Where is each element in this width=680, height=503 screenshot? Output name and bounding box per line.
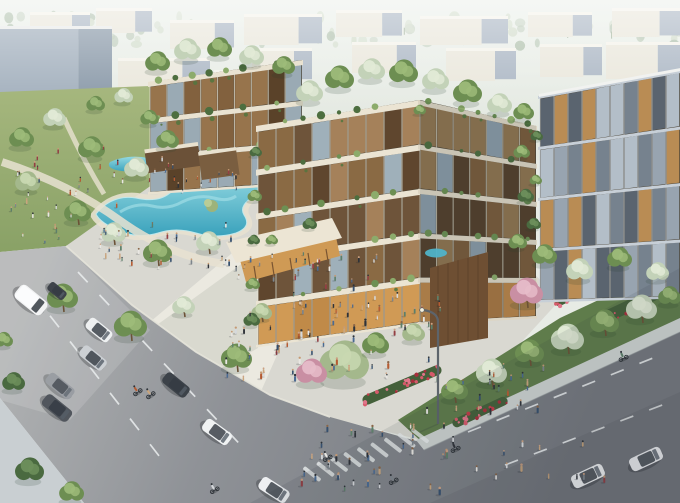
tree-highlight [543,250,553,260]
tree-highlight [525,285,538,298]
person-head [489,370,491,372]
window-bay [625,191,638,243]
balcony-planting [336,286,341,291]
tree-highlight [70,487,80,497]
person [446,386,447,389]
tree-highlight [255,149,260,154]
person-head [362,305,363,306]
person [321,443,323,447]
person [277,344,279,350]
person-head [352,303,353,304]
window-bay [597,194,610,245]
person [392,297,394,301]
person [371,427,373,433]
person-head [208,263,210,265]
person [232,343,233,347]
tree-highlight [656,267,665,276]
tree-highlight [370,64,380,74]
tree-highlight [338,72,349,83]
person [178,184,180,188]
person-head [367,274,369,276]
person [367,276,368,280]
person [431,325,433,330]
window-bay [331,294,348,334]
person [103,229,104,233]
person [319,260,321,264]
balcony-planting [390,233,396,239]
person-head [151,253,152,254]
balcony-planting [264,165,270,171]
person-head [38,178,40,180]
person-head [230,235,232,237]
person [301,302,303,306]
balcony-planting [371,191,379,199]
person-head [225,357,227,359]
person-head [34,161,36,163]
person-head [364,319,366,321]
person [378,307,380,312]
person-head [177,182,179,184]
person [120,246,122,251]
person-head [308,329,310,331]
person [371,365,372,368]
balcony-planting [189,72,196,79]
main-building-sunlit-face [256,100,421,348]
person [300,331,302,337]
person-head [15,203,16,204]
window-bay [653,76,666,131]
person-head [243,375,245,377]
person-head [378,305,380,307]
tree-highlight [498,99,508,109]
person-head [119,253,121,255]
person-head [118,230,120,232]
person-head [113,172,115,174]
tree-highlight [207,237,217,247]
person [121,258,122,261]
person-head [191,258,193,260]
window-bay [277,126,294,166]
person-head [160,259,162,261]
person-head [348,365,350,367]
person-head [394,329,396,331]
person [114,173,115,177]
window-bay [313,120,330,160]
person-head [103,145,104,146]
person [109,249,110,252]
window-bay [611,192,624,244]
tree-highlight [156,57,166,67]
person [152,224,153,228]
person [26,200,28,204]
balcony-planting [171,111,179,119]
person [197,177,198,180]
person-head [228,169,230,171]
person [57,149,59,153]
person-head [305,302,307,304]
window-bay [569,144,582,195]
person [22,234,23,237]
window-bay [653,132,666,186]
hanging-plant [341,164,344,167]
person-head [75,191,76,192]
person [312,264,314,269]
person-head [225,222,227,224]
person [351,280,352,283]
person-head [325,282,327,284]
person-head [210,178,211,179]
person-head [400,321,402,323]
tree-highlight [95,100,102,107]
balcony-planting [283,119,287,123]
person [75,192,76,196]
window-bay [583,195,596,246]
window-bay [639,189,652,242]
person [377,316,378,319]
window-bay [218,114,233,149]
person-head [371,364,372,365]
person [428,358,430,362]
window-bay [667,130,680,185]
person [191,260,193,264]
person-head [273,275,275,277]
person [56,229,58,233]
person-head [69,190,71,192]
person [333,304,334,308]
window-bay [403,284,420,325]
person-head [311,453,313,455]
person [243,377,244,381]
window-bay [625,136,638,189]
person-head [120,244,122,246]
person [335,310,336,313]
window-bay [611,83,624,136]
person-head [19,171,20,172]
balcony-planting [390,189,397,196]
person-head [263,371,265,373]
balcony-planting [317,200,325,208]
person-head [319,258,321,260]
window-bay [331,162,348,202]
person [119,255,121,259]
person [462,381,463,385]
person-head [303,251,304,252]
person [326,427,328,432]
person [293,293,294,296]
person-head [421,305,423,307]
person [17,172,18,176]
hanging-plant [210,78,214,82]
person [352,304,353,307]
balcony-planting [155,77,162,84]
person-head [276,342,278,344]
person-head [353,324,355,326]
person [176,238,177,241]
person [182,190,183,193]
person [37,167,38,170]
balcony-planting [300,115,305,120]
window-bay [295,167,312,207]
person-head [286,341,288,343]
person [351,431,353,436]
window-bay [569,91,582,142]
person [317,259,318,262]
person [48,212,50,217]
person-head [317,265,319,267]
person-head [396,292,398,294]
tree-highlight [402,66,413,77]
person [160,261,162,265]
balcony-planting [223,67,229,73]
person-head [231,331,233,333]
person [250,258,252,263]
hanging-plant [244,113,248,117]
person [165,170,166,173]
person [286,343,288,347]
person-head [99,164,101,166]
person-head [168,163,169,164]
tree-highlight [253,237,258,242]
person [127,232,129,237]
person [79,185,80,188]
person-head [228,259,230,261]
person [131,262,133,266]
hanging-plant [341,120,344,123]
balcony-planting [371,236,378,243]
person-head [304,259,306,261]
person [437,296,439,301]
person-head [404,310,406,312]
person-head [116,202,118,204]
tree-highlight [20,133,30,143]
person-head [321,453,323,455]
person [353,337,355,342]
person [118,232,120,236]
person [358,258,360,263]
tree-highlight [254,193,260,199]
person [296,259,297,262]
window-bay [385,198,402,239]
window-bay [403,239,420,280]
person-head [340,254,342,256]
window-bay [367,200,384,241]
hanging-plant [210,116,215,121]
person-head [236,187,237,188]
person-head [354,431,356,433]
hanging-plant [160,124,162,126]
person [161,158,162,162]
person [332,321,334,326]
person [259,263,260,267]
person [105,231,106,234]
tree-highlight [53,113,62,122]
tree-highlight [521,148,527,154]
person [317,338,319,342]
tree-highlight [412,328,421,337]
window-bay [583,142,596,193]
hanging-plant [193,81,197,85]
person-head [317,336,319,338]
balcony-planting [205,69,212,76]
person [347,313,349,318]
tree-highlight [166,135,175,144]
person-head [332,319,334,321]
person [228,261,230,266]
person-head [232,342,234,344]
person [414,309,416,314]
person-head [301,300,303,302]
tree-highlight [251,316,257,322]
person-head [374,294,376,296]
person-head [437,294,439,296]
balcony-planting [337,110,341,114]
person-head [32,212,34,214]
tree-highlight [235,350,247,362]
person [11,208,12,212]
window-bay [235,112,250,147]
tree-highlight [282,61,291,70]
window-bay [367,156,384,197]
person [238,276,239,280]
balcony-planting [337,154,342,159]
balcony-planting [354,150,361,157]
person-head [385,372,387,374]
window-bay [597,140,610,192]
person [397,294,399,298]
person-head [428,322,429,323]
person [311,455,312,459]
window-bay [349,203,366,243]
person-head [170,256,172,258]
person [297,271,299,276]
person-head [270,325,271,326]
person [272,255,273,258]
balcony-planting [301,292,305,296]
window-bay [611,138,624,190]
person-head [311,349,313,351]
person-head [238,274,239,275]
person-head [358,256,360,258]
tree-highlight [466,86,477,97]
person [225,224,227,228]
balcony-planting [390,278,396,284]
hanging-plant [278,109,281,112]
person-head [11,206,13,208]
tree-highlight [517,238,524,245]
person-head [109,247,110,248]
person [158,266,159,269]
person-head [17,171,19,173]
person [221,257,222,261]
architectural-rendering [0,0,680,503]
person [439,308,440,312]
person [353,286,355,291]
person-head [26,198,28,200]
window-bay [555,146,568,196]
person-head [48,211,50,213]
balcony-planting [300,159,305,164]
person-head [300,329,302,331]
person-head [194,235,195,236]
person [305,304,307,308]
window-bay [168,82,183,116]
tree-highlight [12,377,21,386]
person [423,317,425,322]
window-bay [625,81,638,135]
person [235,267,236,271]
person [225,261,226,265]
person-head [28,192,29,193]
window-bay [385,286,402,326]
hanging-plant [227,76,231,80]
person [100,235,101,239]
window-bay [597,86,610,138]
window-bay [541,148,554,198]
tree-highlight [523,108,531,116]
person [235,175,236,179]
person-head [105,253,107,255]
person [368,304,369,308]
person [294,376,296,382]
window-bay [313,165,330,205]
person-head [44,239,45,240]
window-bay [541,96,554,146]
person-head [350,429,352,431]
person [317,266,319,271]
person [236,188,237,191]
tree-highlight [123,92,130,99]
balcony-planting [372,103,379,110]
person [299,359,301,364]
person-head [343,326,345,328]
person-head [298,332,300,334]
person-head [235,266,237,268]
tree-highlight [536,133,541,138]
person-head [431,323,433,325]
person-head [292,369,294,371]
person-head [312,262,314,264]
person [249,355,250,358]
person [387,363,389,369]
person [100,245,101,248]
balcony-planting [354,195,359,200]
tree-highlight [308,86,318,96]
person-head [197,176,198,177]
person [321,455,323,460]
window-bay [653,188,666,242]
tree-highlight [261,308,269,316]
person-head [78,184,79,185]
window-bay [201,116,216,151]
window-bay [541,200,554,249]
person [116,204,117,208]
person-head [323,341,325,343]
person-head [165,169,166,170]
tree-highlight [434,74,444,84]
person [394,331,396,336]
person [334,277,336,281]
pool-island-highlight [204,199,212,207]
tree-highlight [310,365,322,377]
person-head [221,256,222,257]
window-bay [184,80,199,115]
person [243,329,245,334]
person-head [161,156,163,158]
window-bay [313,297,330,337]
person [376,255,378,259]
window-bay [252,70,267,106]
person-head [100,244,101,245]
